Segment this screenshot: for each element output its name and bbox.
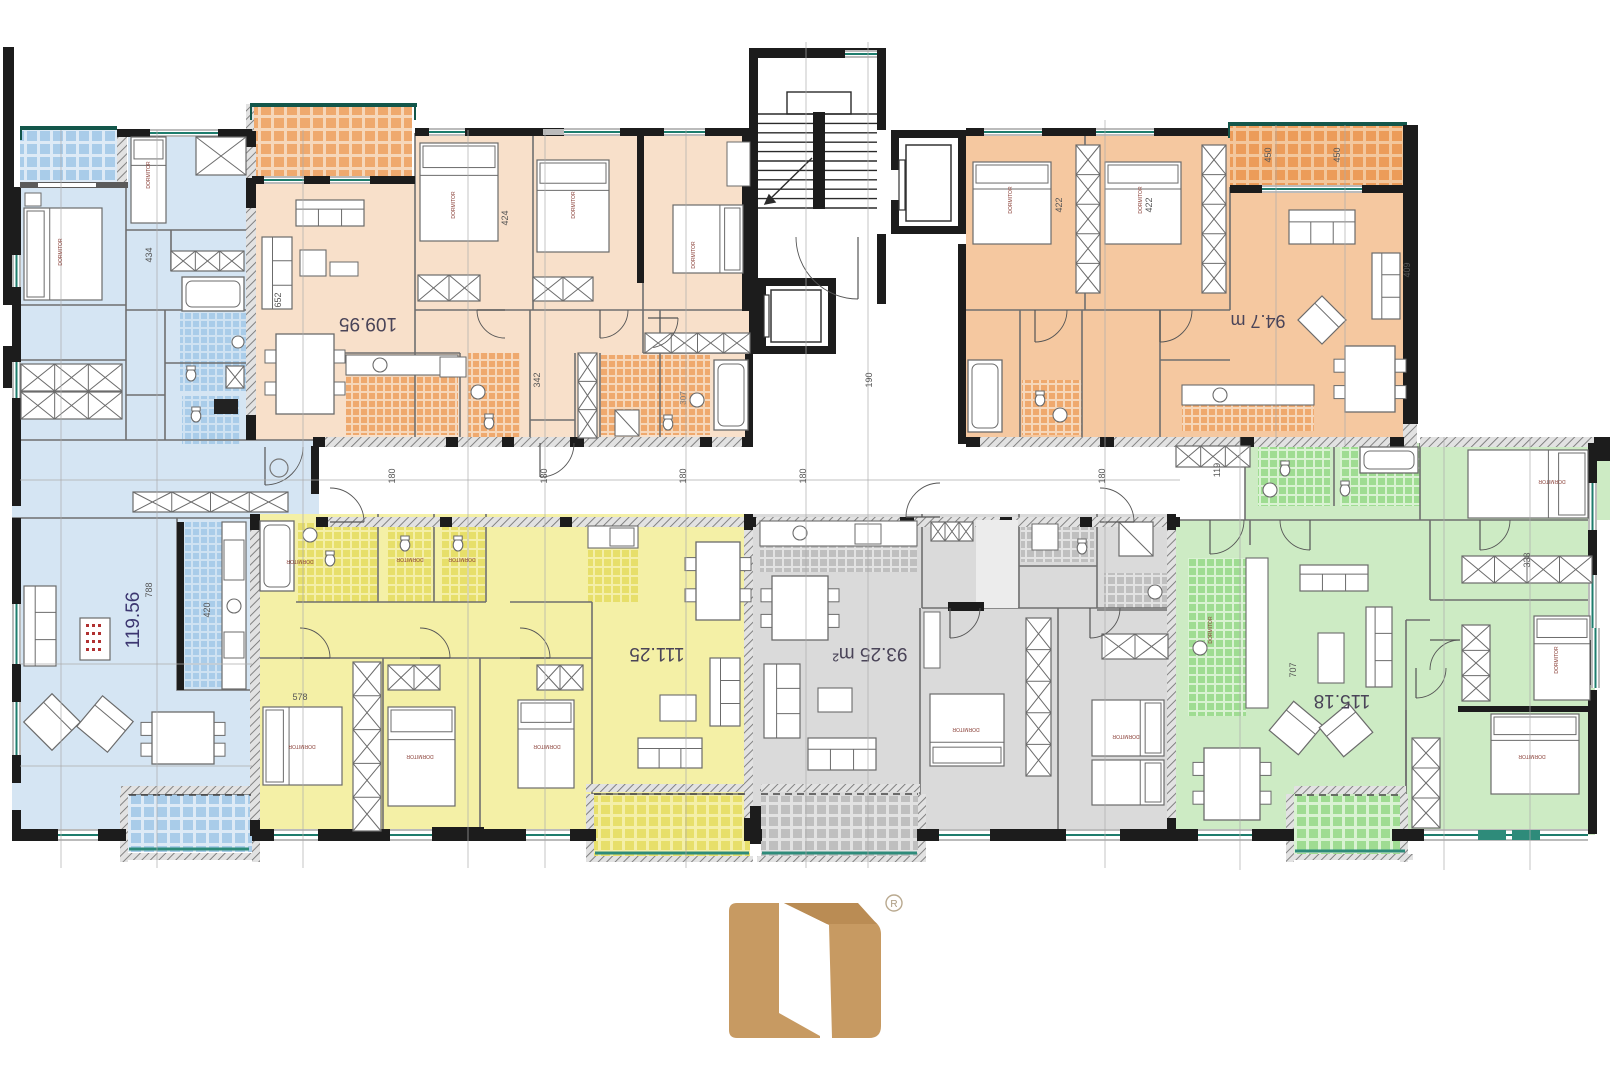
svg-text:93.25 m²: 93.25 m² [833,643,908,664]
svg-text:307: 307 [679,391,688,405]
svg-text:422: 422 [1144,197,1154,212]
svg-text:180: 180 [1097,468,1107,483]
svg-text:DORMITOR: DORMITOR [1208,616,1214,644]
svg-text:R: R [890,899,897,910]
svg-text:DORMITOR: DORMITOR [571,191,577,219]
svg-text:450: 450 [1332,147,1342,162]
svg-text:788: 788 [144,582,154,597]
svg-text:420: 420 [202,602,212,617]
svg-text:180: 180 [539,468,549,483]
svg-text:180: 180 [678,468,688,483]
svg-text:111.25: 111.25 [629,643,684,664]
svg-text:DORMITOR: DORMITOR [448,556,476,562]
svg-text:333: 333 [1522,552,1532,567]
svg-text:578: 578 [292,692,307,702]
svg-text:DORMITOR: DORMITOR [1112,733,1140,739]
svg-text:94.7 m: 94.7 m [1230,311,1285,331]
svg-text:119: 119 [1212,463,1222,477]
svg-text:342: 342 [532,372,542,387]
svg-text:DORMITOR: DORMITOR [1538,478,1566,484]
svg-text:450: 450 [1263,147,1273,162]
svg-text:180: 180 [798,468,808,483]
svg-text:409: 409 [1402,262,1412,277]
svg-text:DORMITOR: DORMITOR [58,238,64,266]
svg-text:707: 707 [1288,662,1298,677]
svg-text:DORMITOR: DORMITOR [1518,753,1546,759]
svg-text:DORMITOR: DORMITOR [286,558,314,564]
svg-text:DORMITOR: DORMITOR [1008,186,1014,214]
svg-text:190: 190 [864,372,874,387]
svg-text:DORMITOR: DORMITOR [952,726,980,732]
svg-text:424: 424 [500,210,510,225]
svg-text:119.56: 119.56 [123,592,144,649]
svg-text:DORMITOR: DORMITOR [288,743,316,749]
svg-text:115.18: 115.18 [1314,690,1371,711]
svg-text:DORMITOR: DORMITOR [146,161,152,189]
svg-text:DORMITOR: DORMITOR [451,191,457,219]
svg-text:652: 652 [273,292,283,307]
svg-text:109.95: 109.95 [339,313,397,334]
svg-text:DORMITOR: DORMITOR [691,241,697,269]
svg-text:DORMITOR: DORMITOR [396,556,424,562]
svg-text:DORMITOR: DORMITOR [1138,186,1144,214]
svg-text:180: 180 [387,468,397,483]
svg-text:DORMITOR: DORMITOR [533,743,561,749]
svg-text:422: 422 [1054,197,1064,212]
svg-text:DORMITOR: DORMITOR [406,753,434,759]
svg-text:434: 434 [144,247,154,262]
svg-text:DORMITOR: DORMITOR [1554,646,1560,674]
